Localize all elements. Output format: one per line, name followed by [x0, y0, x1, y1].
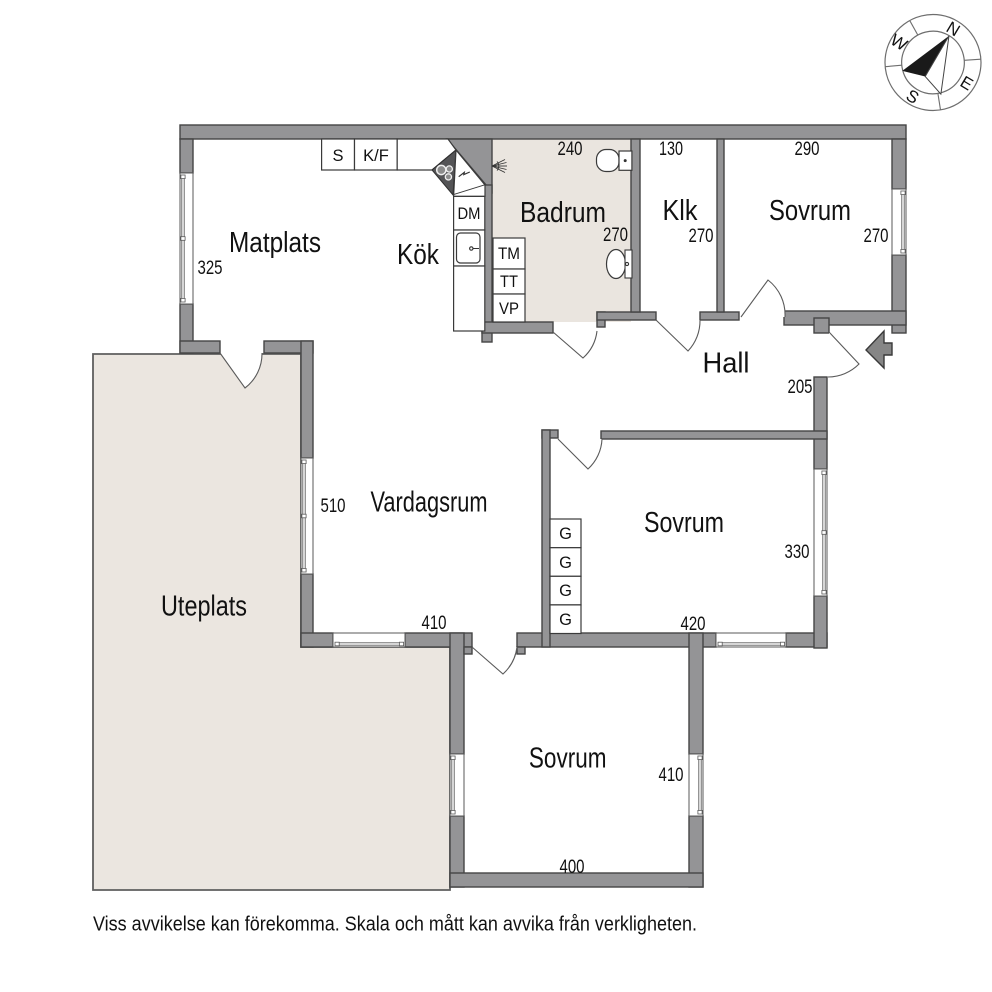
svg-text:G: G: [559, 554, 572, 572]
svg-text:S: S: [332, 147, 343, 165]
svg-text:Klk: Klk: [663, 195, 698, 227]
svg-text:VP: VP: [499, 300, 519, 318]
svg-text:Sovrum: Sovrum: [644, 507, 724, 539]
svg-text:G: G: [559, 582, 572, 600]
svg-text:410: 410: [422, 613, 447, 634]
svg-text:290: 290: [795, 139, 820, 160]
svg-text:Kök: Kök: [397, 239, 439, 271]
svg-text:Uteplats: Uteplats: [161, 591, 247, 623]
svg-text:Badrum: Badrum: [520, 197, 606, 229]
svg-text:270: 270: [864, 226, 889, 247]
svg-text:240: 240: [558, 139, 583, 160]
svg-text:270: 270: [603, 225, 628, 246]
svg-text:Hall: Hall: [703, 348, 750, 380]
svg-text:205: 205: [788, 377, 813, 398]
svg-text:Viss avvikelse kan förekomma.: Viss avvikelse kan förekomma. Skala och …: [93, 913, 697, 935]
svg-text:Matplats: Matplats: [229, 227, 321, 259]
svg-text:Sovrum: Sovrum: [769, 195, 851, 227]
svg-text:TT: TT: [500, 273, 518, 291]
svg-text:410: 410: [659, 765, 684, 786]
svg-text:G: G: [559, 525, 572, 543]
svg-text:TM: TM: [498, 245, 520, 263]
svg-text:130: 130: [659, 139, 683, 160]
svg-text:400: 400: [560, 857, 585, 878]
svg-text:330: 330: [785, 542, 810, 563]
svg-text:Sovrum: Sovrum: [529, 743, 607, 775]
svg-text:K/F: K/F: [363, 147, 389, 165]
svg-text:DM: DM: [458, 205, 481, 223]
svg-text:325: 325: [198, 258, 223, 279]
svg-text:510: 510: [321, 496, 346, 517]
svg-text:Vardagsrum: Vardagsrum: [371, 487, 488, 519]
svg-text:G: G: [559, 611, 572, 629]
svg-text:270: 270: [689, 226, 714, 247]
svg-text:420: 420: [681, 614, 706, 635]
